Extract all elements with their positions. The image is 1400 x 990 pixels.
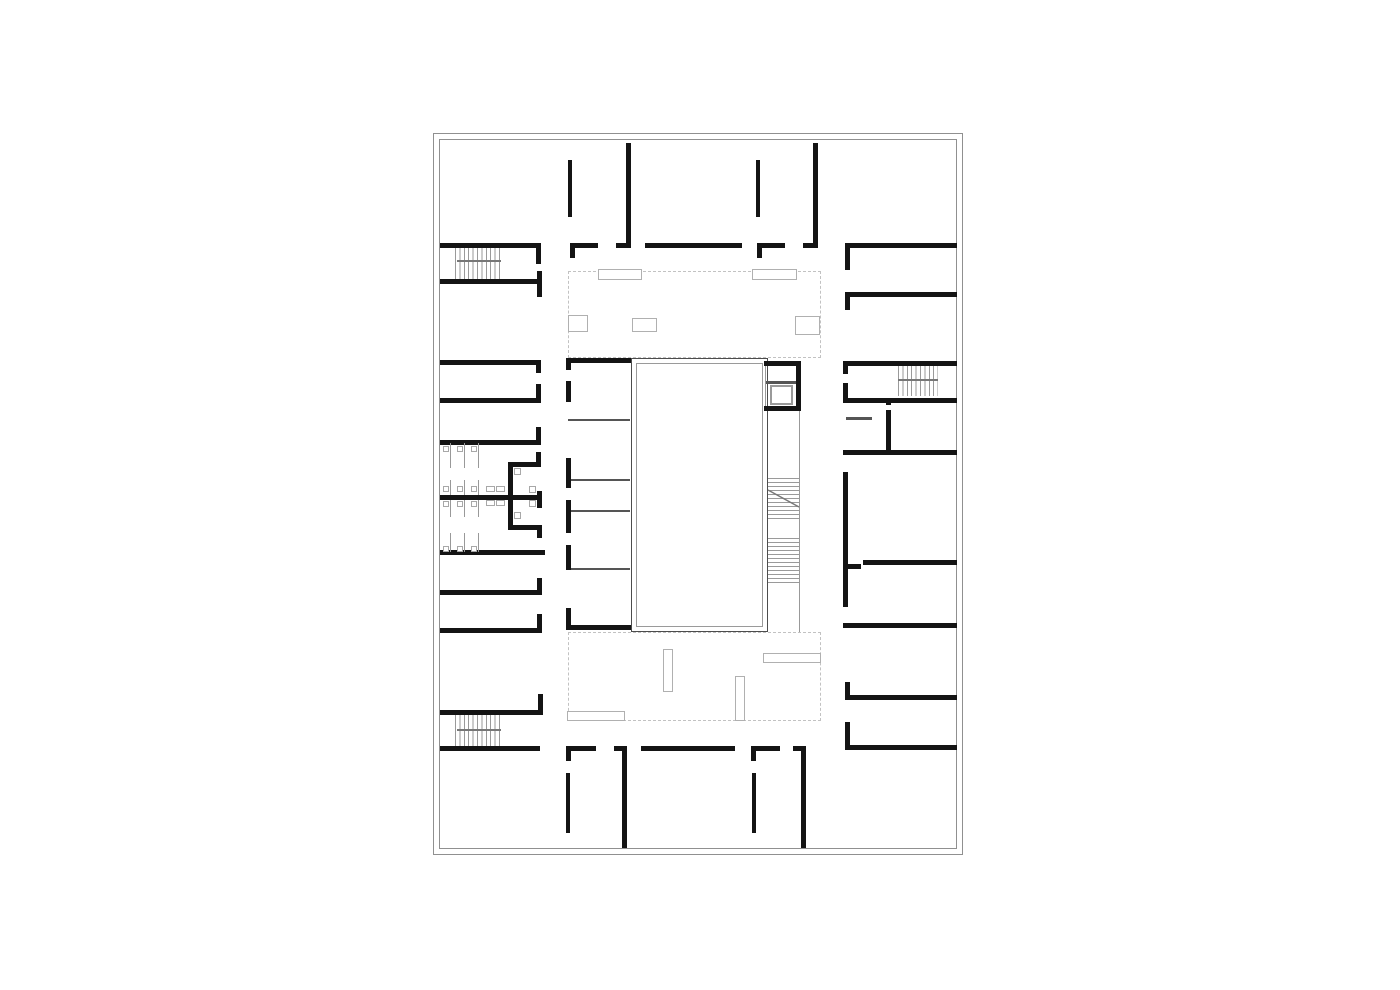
stair-top-left-landing	[457, 260, 501, 262]
stair-top-right-landing	[898, 379, 938, 381]
wall-segment	[751, 751, 756, 761]
partition-wall	[568, 479, 630, 481]
desk-chair	[443, 546, 449, 552]
skylight-fixture	[663, 649, 673, 692]
wall-segment	[440, 550, 545, 555]
skylight-fixture	[567, 711, 625, 721]
wall-segment	[570, 248, 575, 258]
wall-segment	[843, 361, 957, 366]
desk-chair	[529, 500, 536, 507]
desk-chair	[486, 486, 495, 492]
atrium-void-inner	[636, 363, 763, 627]
wall-segment	[803, 243, 818, 248]
wall-segment	[752, 773, 756, 833]
wall-segment	[566, 751, 571, 761]
wall-segment	[440, 628, 540, 633]
partition-wall	[846, 417, 872, 420]
desk-chair	[443, 501, 449, 507]
wall-segment	[440, 440, 540, 445]
wall-segment	[566, 458, 571, 488]
wall-segment	[641, 746, 735, 751]
desk-line	[464, 500, 465, 517]
skylight-fixture	[795, 316, 820, 335]
wall-segment	[845, 243, 957, 248]
desk-chair	[471, 501, 477, 507]
wall-segment	[886, 398, 891, 405]
wall-segment	[863, 560, 957, 565]
desk-chair	[471, 446, 477, 452]
stair-central-lower[interactable]	[768, 538, 799, 583]
wall-segment	[845, 248, 850, 270]
wall-segment	[757, 248, 762, 258]
wall-segment	[440, 746, 540, 751]
wall-segment	[843, 564, 861, 569]
wall-segment	[566, 625, 631, 630]
desk-chair	[443, 446, 449, 452]
wall-segment	[566, 381, 571, 402]
wall-segment	[566, 545, 571, 570]
skylight-fixture	[752, 269, 797, 280]
wall-segment	[537, 271, 542, 297]
wall-segment	[845, 722, 850, 745]
desk-chair	[457, 486, 463, 492]
desk-line	[464, 480, 465, 495]
wall-segment	[440, 360, 540, 365]
wall-segment	[845, 695, 957, 700]
wall-segment	[566, 608, 571, 630]
wall-segment	[536, 452, 541, 467]
partition-wall	[568, 510, 630, 512]
wall-segment	[626, 143, 631, 245]
skylight-fixture	[763, 653, 821, 663]
wall-segment	[538, 694, 543, 715]
desk-line	[450, 500, 451, 517]
desk-line	[450, 480, 451, 495]
canopy-outline	[568, 271, 821, 358]
wall-segment	[813, 143, 818, 245]
desk-line	[478, 500, 479, 517]
skylight-fixture	[568, 315, 588, 332]
wall-segment	[764, 406, 801, 411]
wall-segment	[566, 358, 571, 370]
partition-wall	[766, 381, 798, 384]
wall-segment	[440, 398, 540, 403]
partition-wall	[568, 568, 630, 570]
wall-segment	[843, 623, 957, 628]
wall-segment	[508, 462, 513, 530]
stair-top-left[interactable]	[455, 248, 503, 279]
wall-segment	[568, 160, 572, 217]
partition-wall	[568, 419, 630, 421]
desk-line	[464, 533, 465, 552]
wall-segment	[845, 292, 957, 297]
shaft-line	[765, 361, 766, 411]
wall-segment	[845, 682, 850, 695]
stair-top-right[interactable]	[898, 366, 938, 396]
desk-chair	[457, 546, 463, 552]
desk-chair	[457, 501, 463, 507]
wall-segment	[614, 746, 627, 751]
wall-segment	[537, 614, 542, 633]
wall-segment	[801, 746, 806, 848]
skylight-fixture	[735, 676, 745, 721]
wall-segment	[566, 773, 570, 833]
canopy-outline	[568, 632, 821, 721]
desk-chair	[471, 546, 477, 552]
stair-central-upper[interactable]	[768, 475, 799, 519]
desk-line	[478, 443, 479, 468]
desk-chair	[496, 500, 505, 506]
floor-plan-canvas	[0, 0, 1400, 990]
skylight-fixture	[598, 269, 642, 280]
desk-chair	[457, 446, 463, 452]
wall-segment	[537, 578, 542, 595]
wall-segment	[440, 279, 540, 284]
wall-segment	[843, 472, 848, 607]
desk-line	[464, 443, 465, 468]
elevator-car[interactable]	[770, 385, 793, 405]
desk-chair	[471, 486, 477, 492]
wall-segment	[440, 243, 540, 248]
wall-segment	[845, 745, 957, 750]
wall-segment	[537, 525, 542, 538]
wall-segment	[566, 358, 631, 363]
stair-bottom-left-landing	[457, 729, 501, 731]
wall-segment	[843, 450, 957, 455]
desk-chair	[514, 512, 521, 519]
wall-segment	[536, 243, 541, 264]
wall-segment	[616, 243, 631, 248]
desk-chair	[486, 500, 495, 506]
wall-segment	[645, 243, 742, 248]
desk-line	[450, 443, 451, 468]
desk-chair	[514, 468, 521, 475]
skylight-fixture	[632, 318, 657, 332]
wall-segment	[793, 746, 806, 751]
wall-segment	[845, 297, 850, 310]
desk-line	[478, 533, 479, 552]
shaft-line	[799, 411, 800, 632]
desk-line	[478, 480, 479, 495]
desk-chair	[496, 486, 505, 492]
wall-segment	[886, 410, 891, 452]
wall-segment	[440, 710, 543, 715]
desk-chair	[443, 486, 449, 492]
wall-segment	[440, 590, 540, 595]
desk-line	[450, 533, 451, 552]
wall-segment	[843, 383, 848, 398]
wall-segment	[536, 384, 541, 403]
wall-segment	[566, 500, 571, 533]
wall-segment	[843, 366, 848, 374]
wall-segment	[756, 160, 760, 217]
wall-segment	[796, 361, 801, 411]
wall-segment	[536, 360, 541, 373]
wall-segment	[843, 398, 957, 403]
wall-segment	[622, 746, 627, 848]
wall-segment	[537, 491, 542, 508]
wall-segment	[536, 427, 541, 445]
desk-chair	[529, 486, 536, 493]
